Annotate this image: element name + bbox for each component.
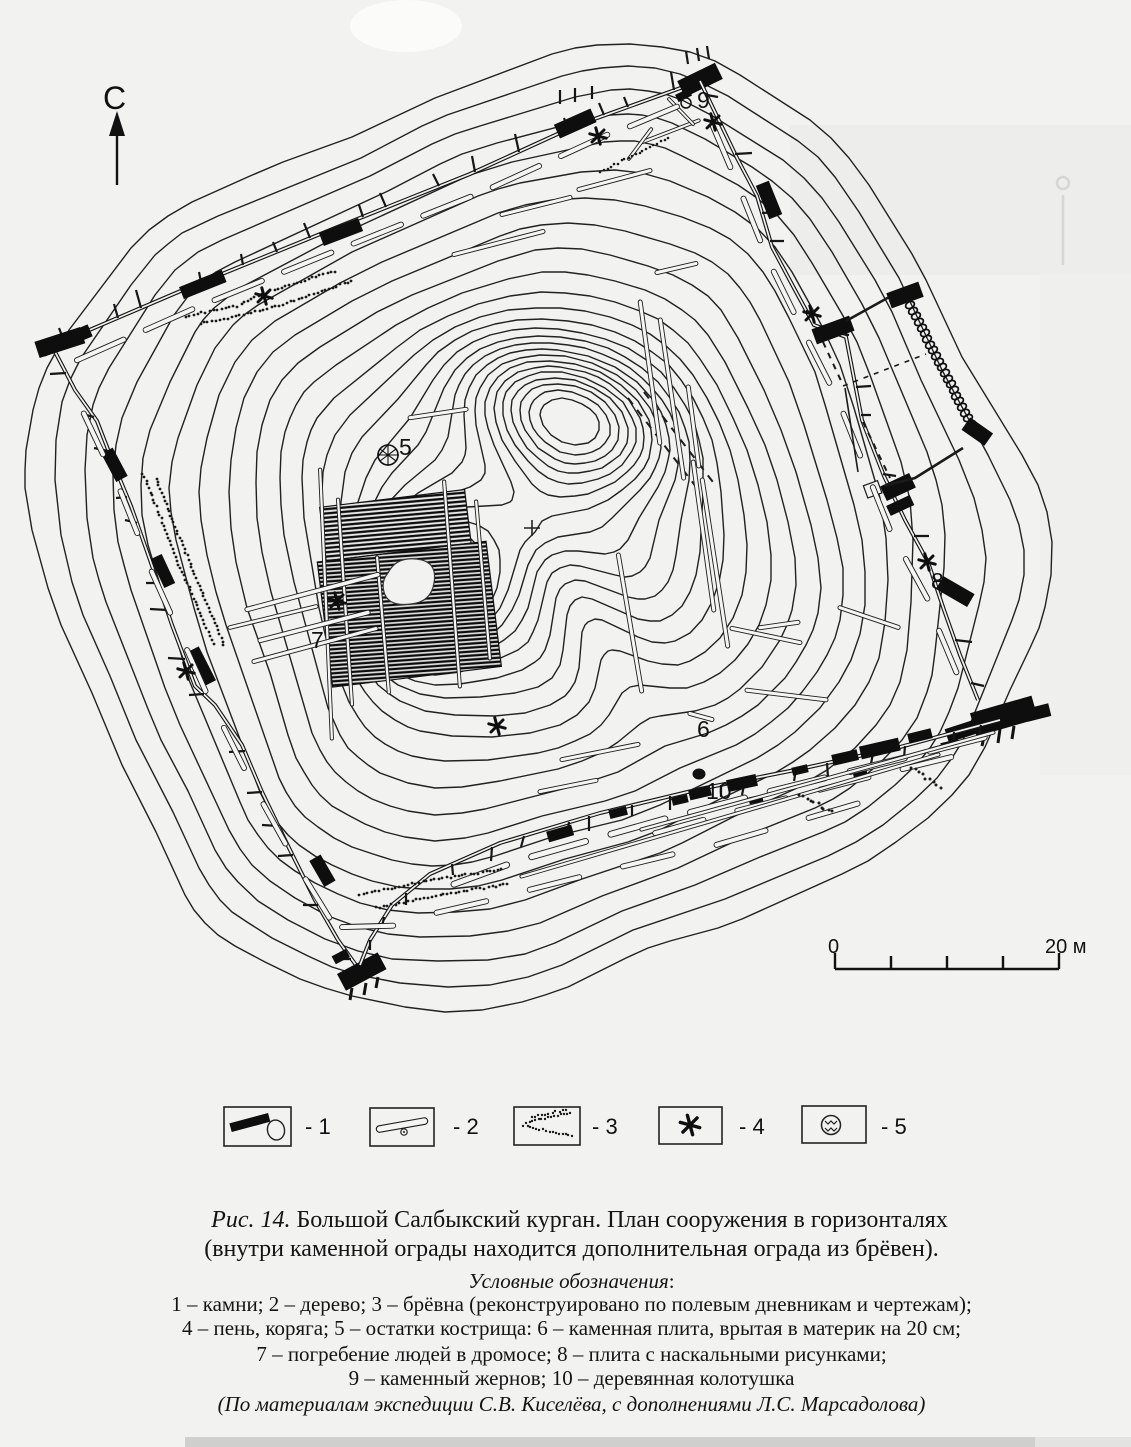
svg-text:С: С — [103, 80, 126, 116]
svg-text:- 1: - 1 — [305, 1114, 331, 1139]
svg-text:20 м: 20 м — [1045, 936, 1087, 958]
svg-text:6: 6 — [697, 716, 710, 742]
svg-text:7: 7 — [311, 627, 324, 653]
svg-text:5: 5 — [399, 434, 412, 460]
svg-text:10: 10 — [706, 778, 732, 804]
svg-text:- 4: - 4 — [739, 1114, 765, 1139]
svg-text:0: 0 — [828, 936, 839, 958]
svg-text:8: 8 — [931, 568, 944, 594]
svg-text:9: 9 — [697, 87, 710, 113]
svg-text:- 2: - 2 — [453, 1114, 479, 1139]
svg-text:- 3: - 3 — [592, 1114, 618, 1139]
svg-text:- 5: - 5 — [881, 1114, 907, 1139]
